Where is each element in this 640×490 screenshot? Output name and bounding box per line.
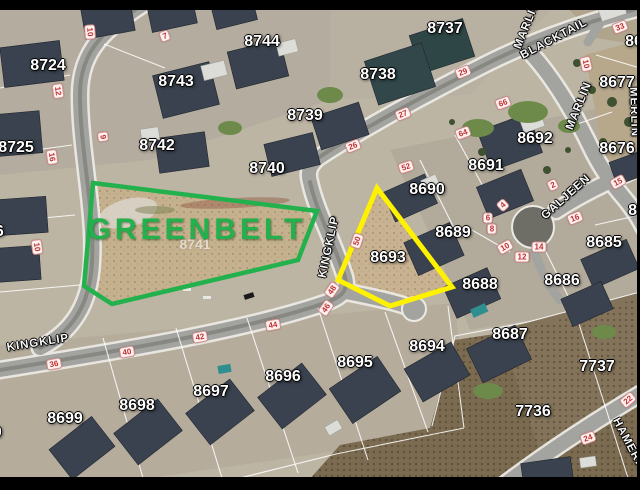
parcel-number-8687-18: 8687 [492,326,528,344]
house-number-7-0: 7 [158,29,172,43]
parcel-number-8724-0: 8724 [30,57,66,75]
parcel-number-8692-14: 8692 [517,130,553,148]
parcel-number-8740-10: 8740 [249,160,285,178]
house-number-2-21: 2 [546,178,560,192]
house-number-16-4: 16 [46,149,59,165]
house-number-12-26: 12 [515,252,530,263]
parcel-number-8698-23: 8698 [119,397,155,415]
letterbox-top [0,0,640,10]
house-number-6-23: 6 [483,213,493,224]
parcel-number-8739-8: 8739 [287,107,323,125]
house-number-44-17: 44 [265,318,282,331]
parcel-number-8741-11: 8741 [179,236,210,252]
parcel-number-8725-1: 8725 [0,139,34,157]
house-number-50-14: 50 [349,232,364,250]
house-number-24-31: 24 [579,430,597,445]
house-number-10-10: 10 [579,56,593,73]
parcel-number-7736-32: 7736 [515,403,551,421]
parcel-number-8699-24: 8699 [47,410,83,428]
screenshot: GREENBELT 872487258726870087438744873787… [0,0,640,490]
parcel-number-8695-20: 8695 [337,354,373,372]
house-number-9-3: 9 [97,131,109,143]
letterbox-bottom [0,477,640,490]
house-number-42-18: 42 [192,330,209,343]
street-label-kingklip-0: KINGKLIP [6,332,70,354]
house-number-64-12: 64 [454,125,472,140]
parcel-number-8688-16: 8688 [462,276,498,294]
house-number-14-27: 14 [532,242,547,253]
house-number-22-30: 22 [619,391,637,409]
house-number-12-2: 12 [52,83,65,99]
house-number-66-11: 66 [494,95,512,110]
parcel-number-8693-17: 8693 [370,249,406,267]
house-number-46-16: 46 [317,299,335,318]
parcel-number-8686-26: 8686 [544,272,580,290]
parcel-number-8676-27: 8676 [599,140,635,158]
house-number-29-8: 29 [454,64,472,80]
parcel-number-8743-4: 8743 [158,73,194,91]
parcel-number-8737-6: 8737 [427,20,463,38]
parcel-number-8685-25: 8685 [586,234,622,252]
parcel-number-8742-9: 8742 [139,137,175,155]
parcel-number-8744-5: 8744 [244,33,280,51]
house-number-8-24: 8 [487,224,497,235]
house-number-40-19: 40 [119,345,136,358]
parcel-number-7737-31: 7737 [579,358,615,376]
street-label-galjeen-5: GALJEEN [539,172,593,222]
parcel-number-8700-3: 8700 [0,424,2,442]
street-label-kingklip-1: KINGKLIP [317,215,342,279]
house-number-48-15: 48 [323,281,341,300]
house-number-16-28: 16 [566,210,584,226]
house-number-26-6: 26 [344,138,362,154]
house-number-27-7: 27 [394,106,412,122]
parcel-number-8726-2: 8726 [0,223,4,241]
map-labels: GREENBELT 872487258726870087438744873787… [0,0,640,490]
parcel-number-8689-15: 8689 [435,224,471,242]
street-label-marlin-4: MARLIN [564,80,594,132]
house-number-52-13: 52 [397,159,415,174]
parcel-number-8697-22: 8697 [193,383,229,401]
house-number-4-22: 4 [495,197,510,212]
house-number-36-20: 36 [46,357,63,370]
parcel-number-8691-13: 8691 [468,157,504,175]
house-number-10-25: 10 [496,239,514,256]
parcel-number-8690-12: 8690 [409,181,445,199]
house-number-15-29: 15 [609,174,627,191]
house-number-10-5: 10 [31,239,44,255]
parcel-number-8738-7: 8738 [360,66,396,84]
parcel-number-8694-19: 8694 [409,338,445,356]
aerial-map: GREENBELT 872487258726870087438744873787… [0,0,640,490]
parcel-number-8696-21: 8696 [265,368,301,386]
house-number-10-1: 10 [84,24,96,40]
